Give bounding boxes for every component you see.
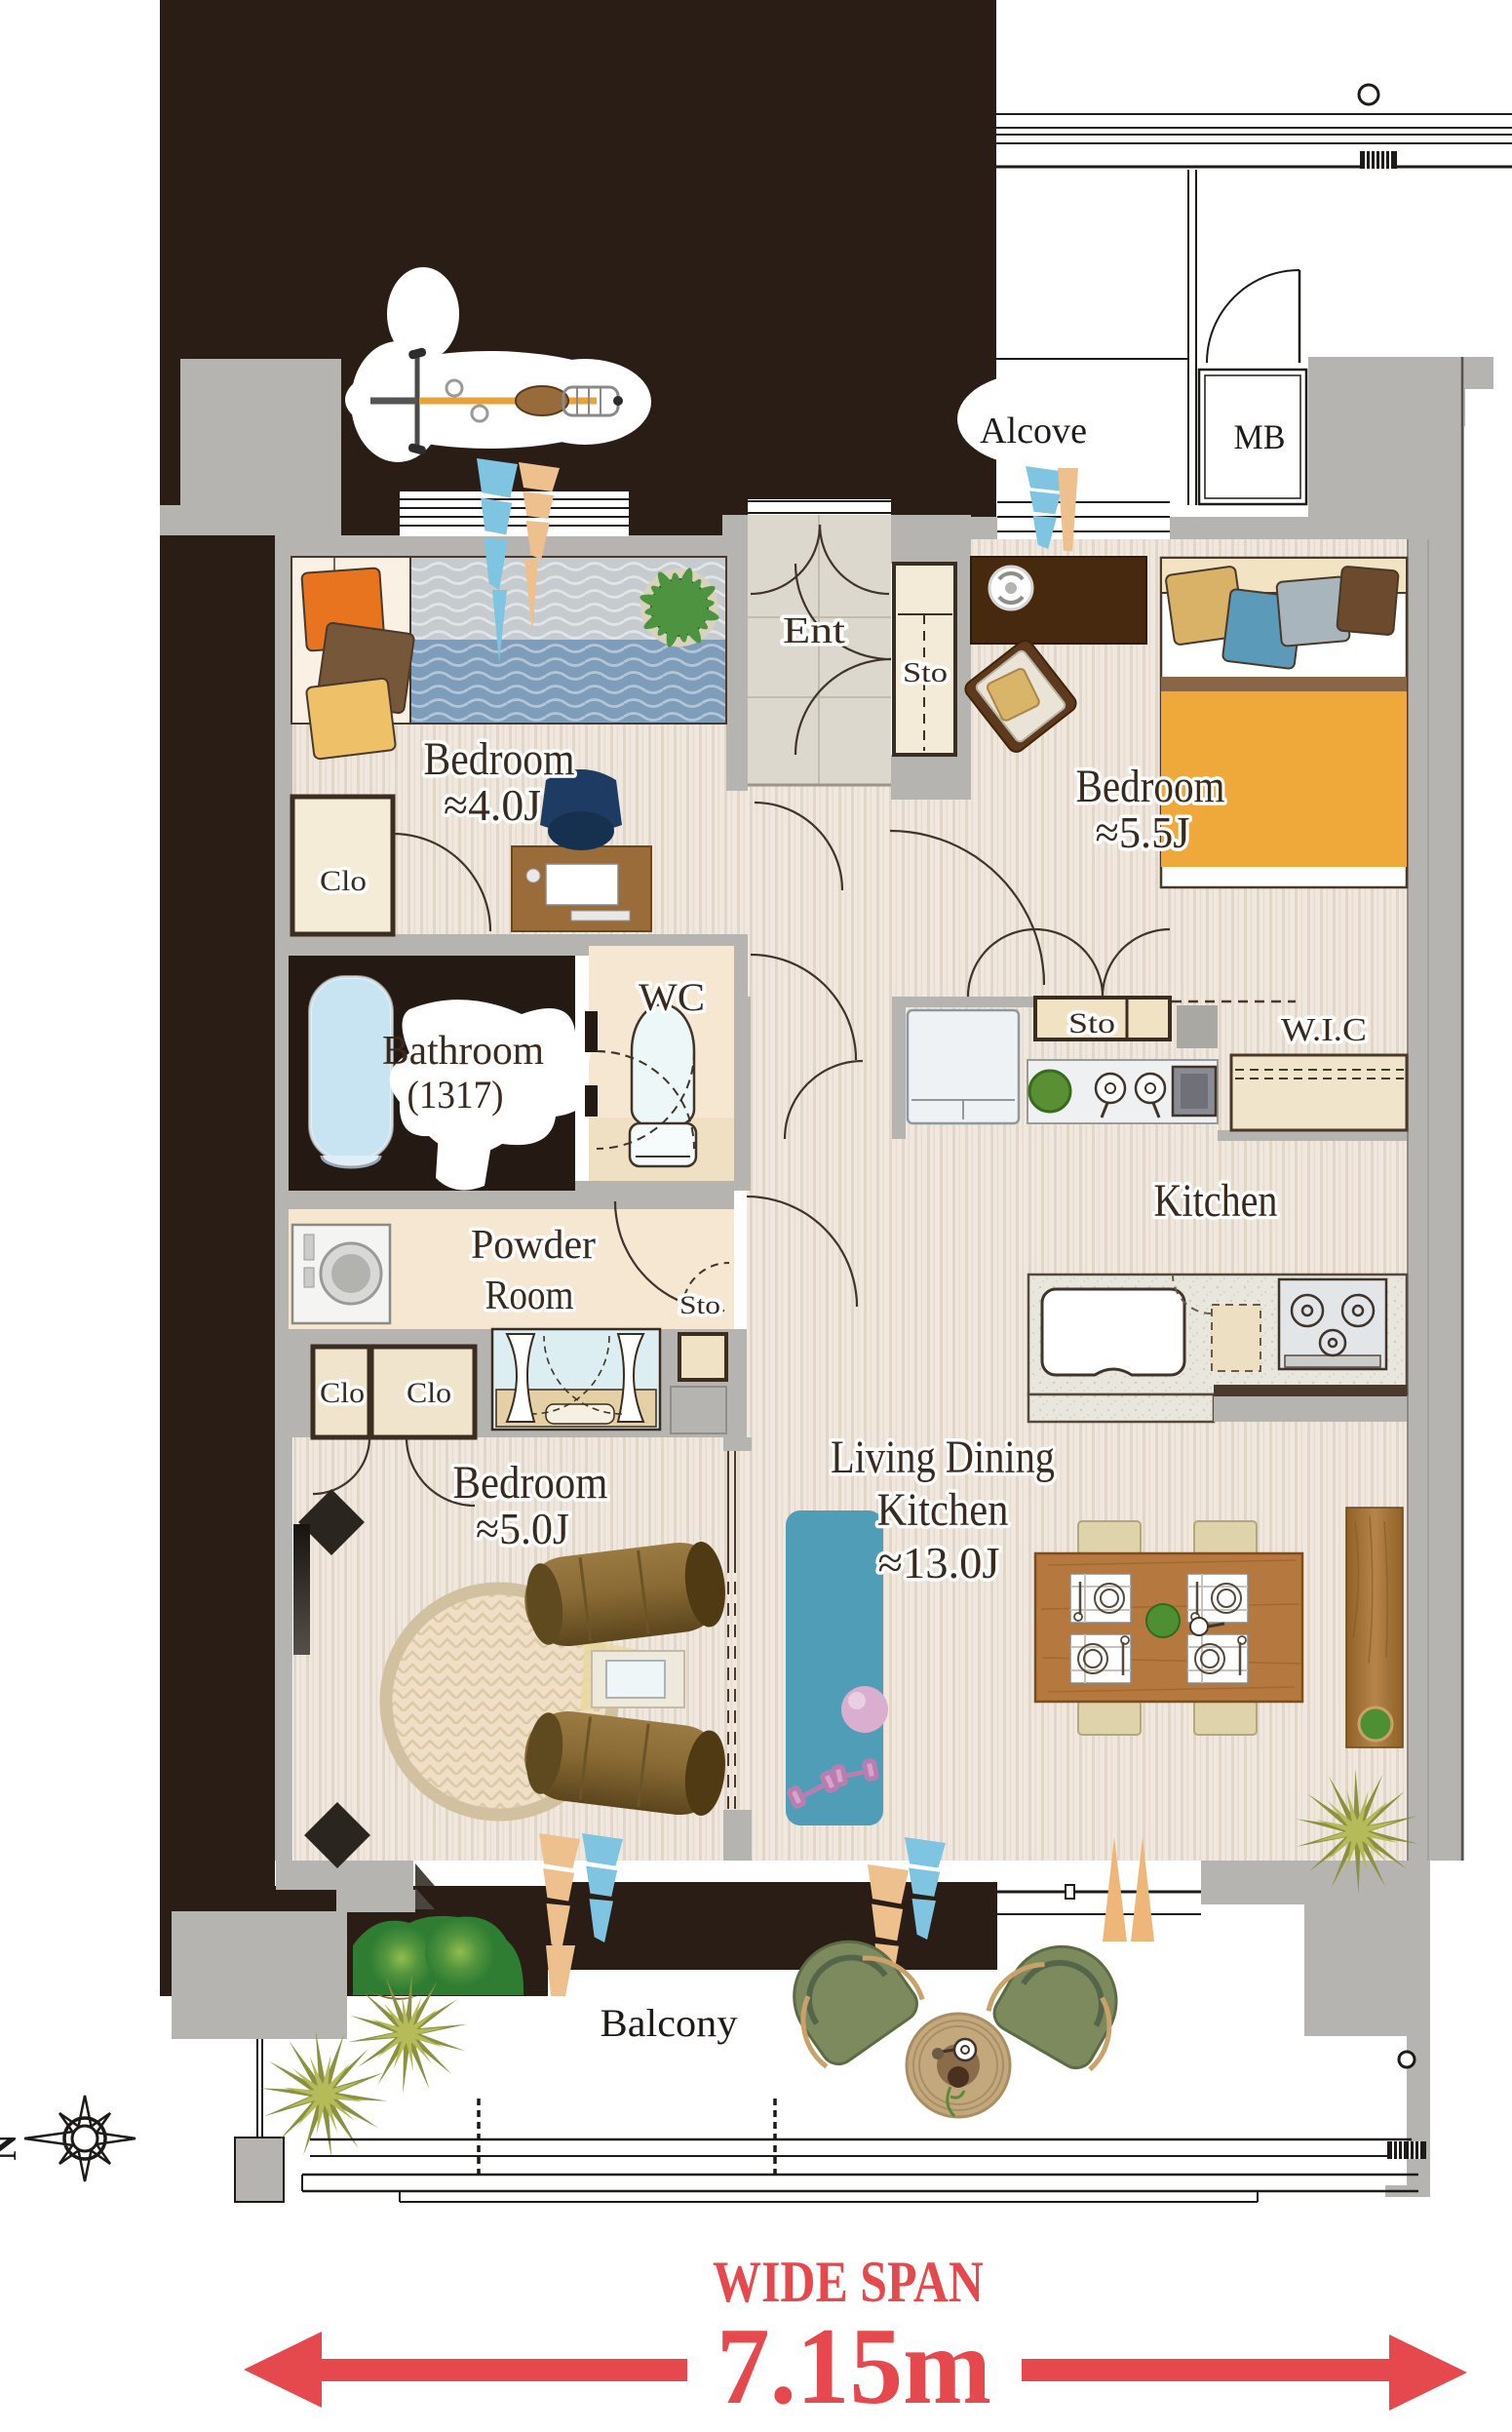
svg-text:(1317): (1317) — [407, 1073, 504, 1117]
svg-text:Room: Room — [485, 1274, 574, 1318]
svg-text:≈13.0J: ≈13.0J — [878, 1538, 1000, 1588]
svg-text:Clo: Clo — [320, 1377, 365, 1409]
svg-text:Bedroom: Bedroom — [424, 733, 575, 785]
svg-text:Sto: Sto — [1068, 1007, 1115, 1039]
svg-text:Bathroom: Bathroom — [382, 1029, 544, 1074]
svg-text:≈5.5J: ≈5.5J — [1096, 807, 1190, 857]
svg-text:Powder: Powder — [471, 1223, 596, 1268]
svg-text:MB: MB — [1234, 417, 1286, 456]
svg-text:WIDE SPAN: WIDE SPAN — [713, 2250, 984, 2314]
svg-text:Sto: Sto — [679, 1291, 720, 1319]
svg-text:≈5.0J: ≈5.0J — [476, 1504, 569, 1553]
svg-text:Bedroom: Bedroom — [1076, 761, 1225, 812]
svg-text:WC: WC — [639, 975, 705, 1019]
svg-text:Alcove: Alcove — [980, 411, 1087, 451]
svg-text:W.I.C: W.I.C — [1281, 1012, 1367, 1048]
svg-text:Clo: Clo — [320, 865, 367, 897]
svg-text:Living Dining: Living Dining — [831, 1432, 1055, 1483]
svg-text:Ent: Ent — [783, 610, 846, 651]
svg-text:≈4.0J: ≈4.0J — [444, 780, 541, 830]
svg-text:Sto: Sto — [903, 658, 948, 688]
svg-text:Bedroom: Bedroom — [453, 1457, 608, 1509]
svg-text:Balcony: Balcony — [601, 2001, 738, 2045]
svg-text:Kitchen: Kitchen — [877, 1484, 1009, 1536]
svg-text:Clo: Clo — [407, 1377, 451, 1409]
svg-text:Kitchen: Kitchen — [1154, 1175, 1278, 1227]
svg-text:7.15m: 7.15m — [717, 2306, 991, 2427]
svg-text:N: N — [0, 2134, 24, 2160]
